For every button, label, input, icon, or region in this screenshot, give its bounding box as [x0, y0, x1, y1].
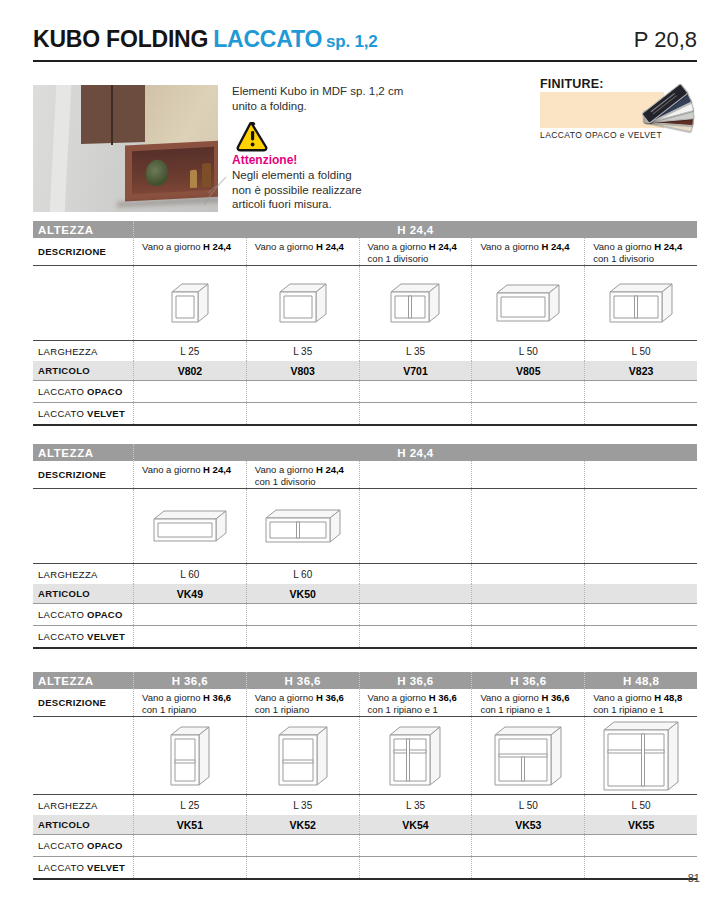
price-cell-empty: [246, 604, 359, 625]
descrizione-cell: Vano a giorno H 24,4con 1 divisorio: [359, 238, 472, 265]
larghezza-label: LARGHEZZA: [33, 795, 133, 815]
laccato-velvet-label: LACCATO VELVET: [33, 403, 133, 424]
product-diagram-vk52: [246, 717, 359, 794]
price-cell-empty: [471, 381, 584, 402]
price-cell-empty: [584, 604, 697, 625]
photo-plant: [146, 159, 168, 186]
descrizione-cell: Vano a giorno H 24,4con 1 divisorio: [584, 238, 697, 265]
price-cell-empty: [584, 626, 697, 647]
descrizione-cell: [584, 461, 697, 488]
articolo-code: V805: [471, 361, 584, 380]
warning-line: Negli elementi a folding: [232, 168, 362, 183]
product-photo: [33, 85, 218, 212]
product-diagram-v802: [133, 266, 246, 340]
photo-brown-door: [81, 85, 145, 144]
larghezza-value: L 50: [584, 341, 697, 361]
descrizione-cell: Vano a giorno H 24,4: [471, 238, 584, 265]
descrizione-cell: Vano a giorno H 36,6con 1 ripiano e 1 di…: [471, 689, 584, 716]
photo-bottle: [190, 170, 197, 188]
price-cell-empty: [133, 857, 246, 878]
laccato-opaco-row: LACCATO OPACO: [33, 381, 697, 403]
spec-table-h244-b: ALTEZZAH 24,4DESCRIZIONEVano a giorno H …: [33, 444, 697, 649]
product-diagram: [584, 489, 697, 563]
articolo-code: V803: [246, 361, 359, 380]
altezza-column-value: H 36,6: [471, 672, 584, 689]
altezza-header-row: ALTEZZAH 24,4: [33, 221, 697, 238]
decorative-sprig: [200, 175, 230, 207]
descrizione-cell: [471, 461, 584, 488]
larghezza-value: L 35: [246, 795, 359, 815]
larghezza-value: L 35: [359, 341, 472, 361]
price-cell-empty: [133, 604, 246, 625]
larghezza-value: L 25: [133, 341, 246, 361]
articolo-code: V802: [133, 361, 246, 380]
warning-line: articoli fuori misura.: [232, 197, 362, 212]
price-cell-empty: [471, 604, 584, 625]
articolo-code: VK54: [359, 815, 472, 834]
altezza-label: ALTEZZA: [33, 444, 133, 461]
price-cell-empty: [471, 403, 584, 424]
price-cell-empty: [359, 403, 472, 424]
larghezza-value: [359, 564, 472, 584]
laccato-opaco-label: LACCATO OPACO: [33, 835, 133, 856]
photo-door-gap: [111, 85, 113, 145]
product-diagram-vk53: [471, 717, 584, 794]
articolo-row: ARTICOLOVK49VK50: [33, 584, 697, 604]
product-diagram-vk49: [133, 489, 246, 563]
figure-row: [33, 717, 697, 795]
price-cell-empty: [133, 403, 246, 424]
descrizione-row: DESCRIZIONEVano a giorno H 24,4Vano a gi…: [33, 461, 697, 489]
articolo-code: VK50: [246, 584, 359, 603]
product-diagram-v805: [471, 266, 584, 340]
articolo-code: VK49: [133, 584, 246, 603]
price-cell-empty: [246, 835, 359, 856]
altezza-label: ALTEZZA: [33, 672, 133, 689]
descrizione-cell: [359, 461, 472, 488]
larghezza-value: L 35: [359, 795, 472, 815]
title-thickness: sp. 1,2: [326, 32, 378, 51]
price-cell-empty: [471, 857, 584, 878]
color-fan-deck: [614, 82, 700, 132]
price-cell-empty: [359, 835, 472, 856]
product-diagram-v701: [359, 266, 472, 340]
laccato-velvet-row: LACCATO VELVET: [33, 403, 697, 424]
descrizione-row: DESCRIZIONEVano a giorno H 24,4Vano a gi…: [33, 238, 697, 266]
page-number: 81: [688, 872, 700, 884]
larghezza-value: [584, 564, 697, 584]
product-diagram-vk50: [246, 489, 359, 563]
articolo-label: ARTICOLO: [33, 584, 133, 603]
articolo-code: VK52: [246, 815, 359, 834]
altezza-span-value: H 24,4: [133, 221, 697, 238]
product-diagram: [359, 489, 472, 563]
price-cell-empty: [359, 857, 472, 878]
price-cell-empty: [246, 626, 359, 647]
descrizione-cell: Vano a giorno H 48,8con 1 ripiano e 1 di…: [584, 689, 697, 716]
figure-label-spacer: [33, 717, 133, 794]
altezza-header-row: ALTEZZAH 24,4: [33, 444, 697, 461]
finiture-label: FINITURE:: [540, 77, 604, 91]
product-diagram-vk51: [133, 717, 246, 794]
title-finish-name: LACCATO: [213, 26, 322, 52]
descrizione-cell: Vano a giorno H 24,4con 1 divisorio: [246, 461, 359, 488]
descrizione-cell: Vano a giorno H 24,4: [246, 238, 359, 265]
descrizione-row: DESCRIZIONEVano a giorno H 36,6con 1 rip…: [33, 689, 697, 717]
larghezza-value: L 25: [133, 795, 246, 815]
spec-table-h244-a: ALTEZZAH 24,4DESCRIZIONEVano a giorno H …: [33, 221, 697, 426]
price-cell-empty: [133, 835, 246, 856]
laccato-opaco-row: LACCATO OPACO: [33, 835, 697, 857]
figure-row: [33, 266, 697, 341]
altezza-column-value: H 36,6: [359, 672, 472, 689]
laccato-velvet-label: LACCATO VELVET: [33, 857, 133, 878]
larghezza-row: LARGHEZZAL 25L 35L 35L 50L 50: [33, 341, 697, 361]
spec-table-h366-h488: ALTEZZAH 36,6H 36,6H 36,6H 36,6H 48,8DES…: [33, 672, 697, 880]
intro-description: Elementi Kubo in MDF sp. 1,2 cm unito a …: [232, 84, 403, 114]
price-cell-empty: [359, 381, 472, 402]
price-cell-empty: [246, 381, 359, 402]
articolo-code: VK55: [584, 815, 697, 834]
photo-wall-stripe: [50, 85, 72, 212]
page-title: KUBO FOLDINGLACCATOsp. 1,2: [33, 26, 378, 53]
price-cell-empty: [584, 381, 697, 402]
figure-label-spacer: [33, 489, 133, 563]
page-header: KUBO FOLDINGLACCATOsp. 1,2 P 20,8: [33, 26, 697, 62]
articolo-code: [471, 584, 584, 603]
altezza-label: ALTEZZA: [33, 221, 133, 238]
price-cell-empty: [584, 835, 697, 856]
price-cell-empty: [471, 835, 584, 856]
larghezza-value: L 50: [584, 795, 697, 815]
warning-title: Attenzione!: [232, 153, 297, 167]
larghezza-label: LARGHEZZA: [33, 341, 133, 361]
warning-line: non è possibile realizzare: [232, 183, 362, 198]
price-cell-empty: [359, 604, 472, 625]
altezza-span-value: H 24,4: [133, 444, 697, 461]
intro-line: unito a folding.: [232, 99, 403, 114]
figure-label-spacer: [33, 266, 133, 340]
price-cell-empty: [584, 857, 697, 878]
price-cell-empty: [246, 857, 359, 878]
articolo-label: ARTICOLO: [33, 815, 133, 834]
descrizione-label: DESCRIZIONE: [33, 461, 133, 488]
articolo-label: ARTICOLO: [33, 361, 133, 380]
warning-triangle-icon: [236, 122, 270, 152]
product-diagram-v803: [246, 266, 359, 340]
intro-line: Elementi Kubo in MDF sp. 1,2 cm: [232, 84, 403, 99]
laccato-opaco-label: LACCATO OPACO: [33, 604, 133, 625]
product-diagram: [471, 489, 584, 563]
larghezza-row: LARGHEZZAL 60L 60: [33, 564, 697, 584]
product-diagram-vk54: [359, 717, 472, 794]
price-cell-empty: [133, 626, 246, 647]
articolo-code: [359, 584, 472, 603]
altezza-column-value: H 48,8: [584, 672, 697, 689]
descrizione-cell: Vano a giorno H 36,6con 1 ripiano: [246, 689, 359, 716]
articolo-code: [584, 584, 697, 603]
descrizione-cell: Vano a giorno H 36,6con 1 ripiano e 1 di…: [359, 689, 472, 716]
altezza-header-row: ALTEZZAH 36,6H 36,6H 36,6H 36,6H 48,8: [33, 672, 697, 689]
descrizione-label: DESCRIZIONE: [33, 238, 133, 265]
price-cell-empty: [246, 403, 359, 424]
price-cell-empty: [471, 626, 584, 647]
price-reference: P 20,8: [634, 27, 697, 53]
altezza-column-value: H 36,6: [133, 672, 246, 689]
catalog-page: { "page": { "title_black": "KUBO FOLDING…: [0, 0, 726, 920]
articolo-row: ARTICOLOV802V803V701V805V823: [33, 361, 697, 381]
figure-row: [33, 489, 697, 564]
articolo-code: VK53: [471, 815, 584, 834]
descrizione-cell: Vano a giorno H 36,6con 1 ripiano: [133, 689, 246, 716]
laccato-opaco-row: LACCATO OPACO: [33, 604, 697, 626]
laccato-velvet-label: LACCATO VELVET: [33, 626, 133, 647]
larghezza-value: L 60: [246, 564, 359, 584]
price-cell-empty: [584, 403, 697, 424]
larghezza-label: LARGHEZZA: [33, 564, 133, 584]
larghezza-row: LARGHEZZAL 25L 35L 35L 50L 50: [33, 795, 697, 815]
laccato-opaco-label: LACCATO OPACO: [33, 381, 133, 402]
descrizione-cell: Vano a giorno H 24,4: [133, 238, 246, 265]
product-diagram-v823: [584, 266, 697, 340]
finiture-caption: LACCATO OPACO e VELVET: [540, 130, 662, 140]
larghezza-value: [471, 564, 584, 584]
price-cell-empty: [359, 626, 472, 647]
price-cell-empty: [133, 381, 246, 402]
altezza-column-value: H 36,6: [246, 672, 359, 689]
warning-text: Negli elementi a folding non è possibile…: [232, 168, 362, 212]
descrizione-cell: Vano a giorno H 24,4: [133, 461, 246, 488]
descrizione-label: DESCRIZIONE: [33, 689, 133, 716]
larghezza-value: L 60: [133, 564, 246, 584]
larghezza-value: L 50: [471, 341, 584, 361]
product-diagram-vk55: [584, 717, 697, 794]
title-product-name: KUBO FOLDING: [33, 26, 208, 52]
articolo-code: V823: [584, 361, 697, 380]
articolo-row: ARTICOLOVK51VK52VK54VK53VK55: [33, 815, 697, 835]
articolo-code: VK51: [133, 815, 246, 834]
laccato-velvet-row: LACCATO VELVET: [33, 626, 697, 647]
larghezza-value: L 35: [246, 341, 359, 361]
laccato-velvet-row: LACCATO VELVET: [33, 857, 697, 878]
larghezza-value: L 50: [471, 795, 584, 815]
articolo-code: V701: [359, 361, 472, 380]
